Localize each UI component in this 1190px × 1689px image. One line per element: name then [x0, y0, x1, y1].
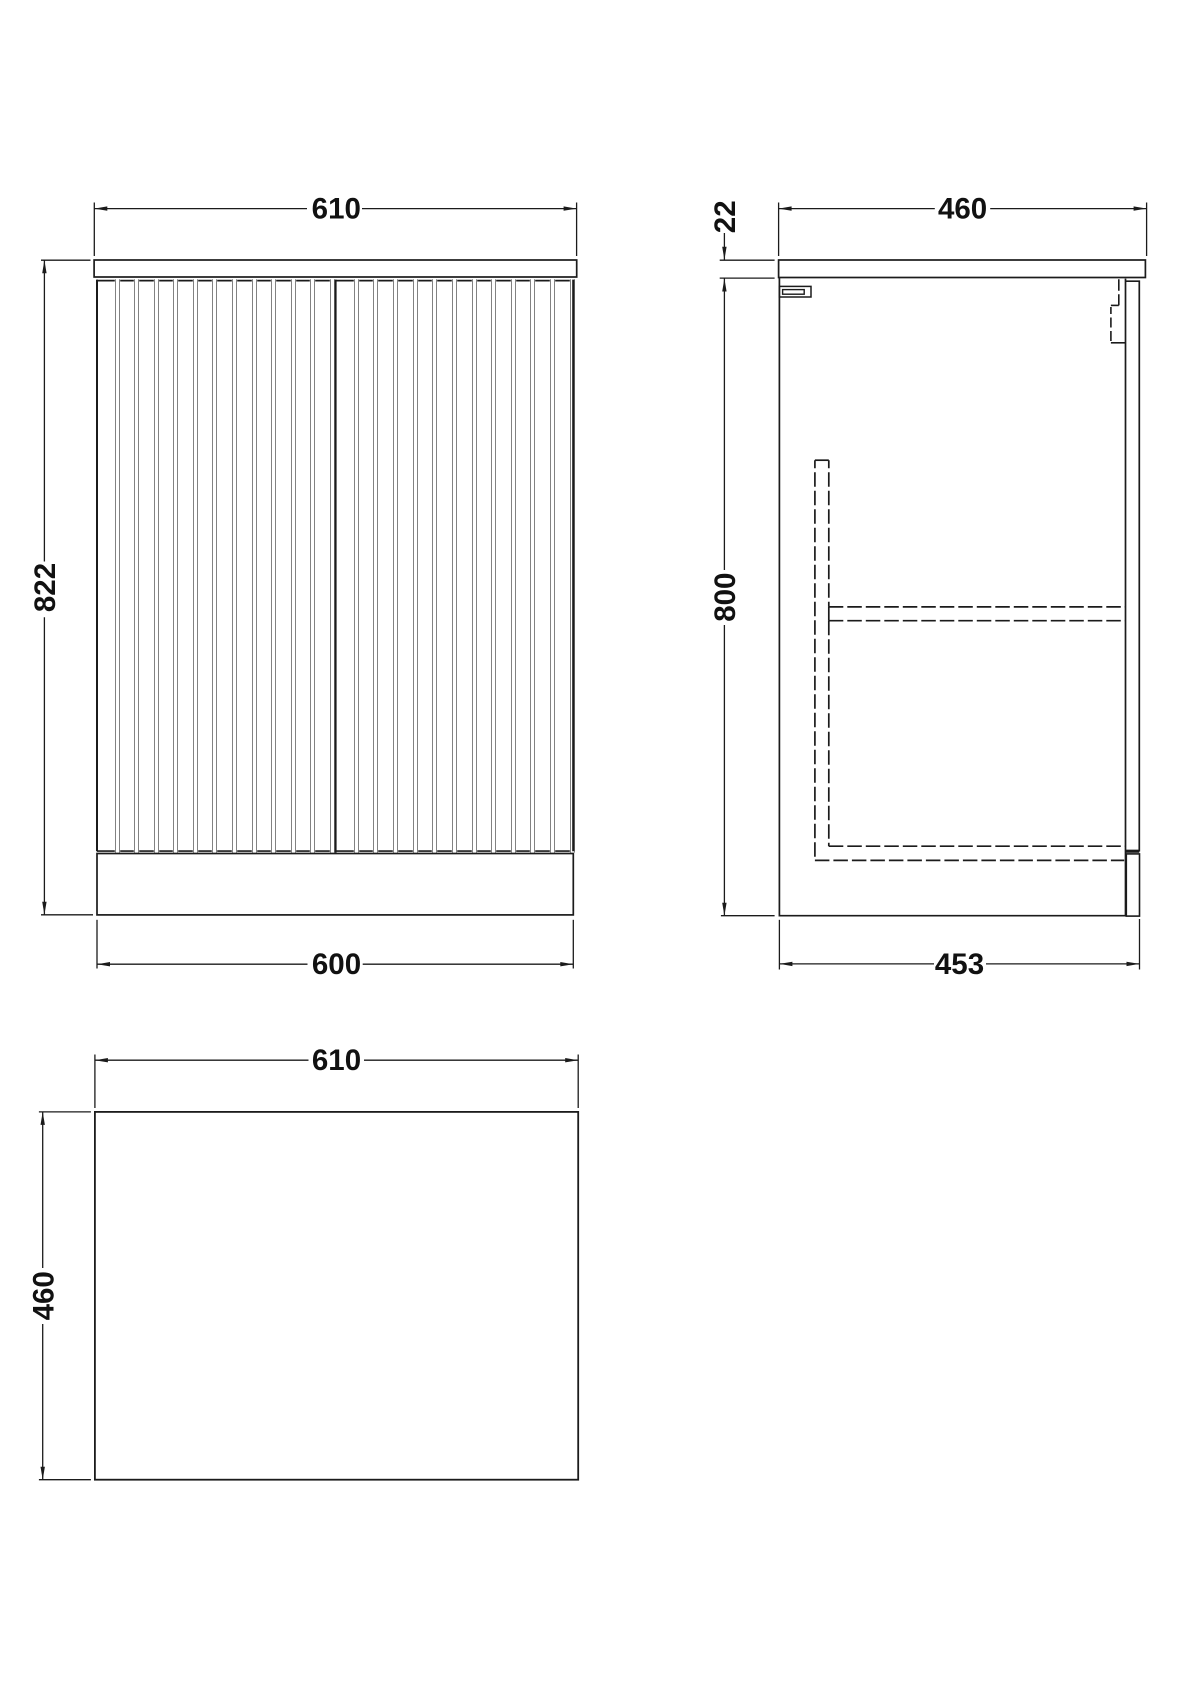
svg-text:460: 460: [938, 193, 987, 226]
svg-text:800: 800: [709, 573, 742, 622]
svg-text:610: 610: [312, 193, 361, 226]
svg-text:822: 822: [29, 563, 62, 612]
svg-text:610: 610: [312, 1044, 361, 1077]
svg-text:453: 453: [935, 948, 984, 981]
svg-text:600: 600: [312, 948, 361, 981]
svg-text:460: 460: [27, 1271, 60, 1320]
svg-text:22: 22: [709, 200, 742, 233]
